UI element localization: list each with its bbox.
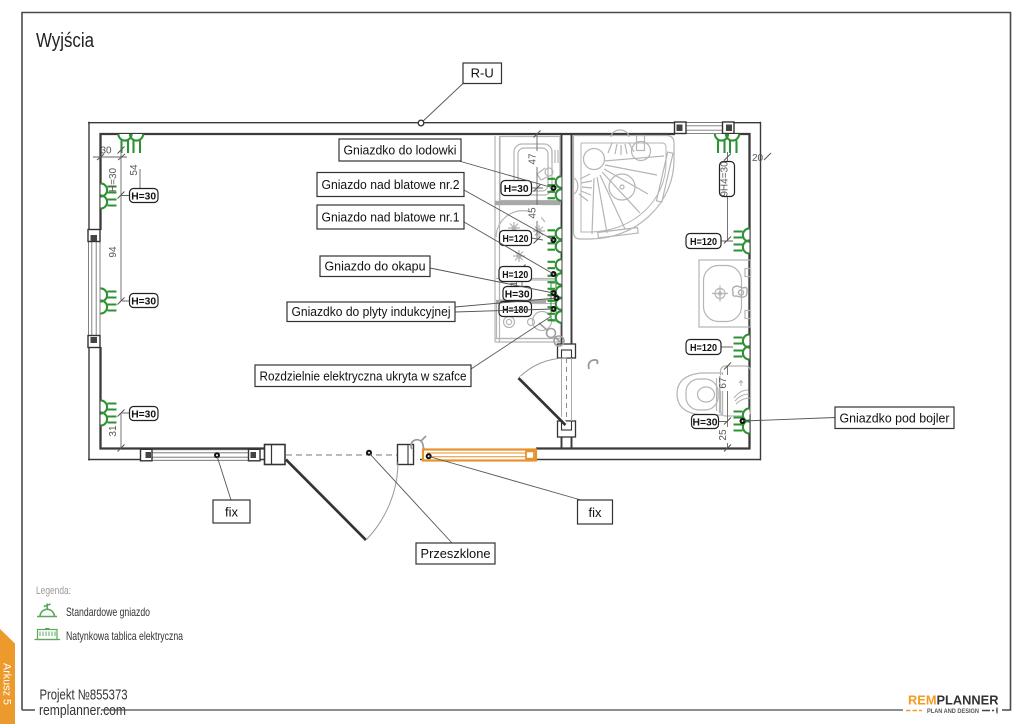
svg-text:Rozdzielnie elektryczna ukryta: Rozdzielnie elektryczna ukryta w szafce: [260, 369, 467, 384]
svg-text:Standardowe gniazdo: Standardowe gniazdo: [66, 605, 150, 619]
svg-text:67: 67: [718, 377, 729, 389]
svg-text:H=30: H=30: [131, 410, 156, 421]
svg-text:Gniazdko do plyty indukcyjnej: Gniazdko do plyty indukcyjnej: [292, 304, 451, 319]
svg-text:H=120: H=120: [503, 234, 529, 245]
svg-text:Gniazdko pod bojler: Gniazdko pod bojler: [840, 411, 951, 426]
svg-text:PLANNER: PLANNER: [937, 694, 999, 708]
svg-text:25: 25: [718, 429, 729, 441]
svg-text:9H4=30: 9H4=30: [720, 161, 731, 197]
svg-text:45: 45: [528, 207, 539, 219]
svg-text:H=30: H=30: [131, 297, 156, 308]
svg-text:Projekt №855373: Projekt №855373: [40, 688, 128, 704]
svg-text:fix: fix: [225, 505, 239, 520]
svg-text:30: 30: [100, 146, 112, 157]
svg-text:Natynkowa tablica elektryczna: Natynkowa tablica elektryczna: [66, 629, 183, 643]
svg-text:H=120: H=120: [690, 237, 717, 248]
svg-text:Przeszklone: Przeszklone: [421, 546, 491, 561]
svg-text:94: 94: [108, 246, 119, 258]
svg-text:H=30: H=30: [108, 167, 119, 192]
svg-text:PLAN AND DESIGN: PLAN AND DESIGN: [927, 709, 979, 715]
svg-text:Legenda:: Legenda:: [36, 585, 71, 597]
svg-text:remplanner.com: remplanner.com: [39, 703, 126, 719]
svg-text:20: 20: [752, 153, 764, 164]
svg-text:H=120: H=120: [690, 343, 717, 354]
svg-text:H=30: H=30: [504, 184, 529, 195]
svg-text:54: 54: [129, 164, 140, 176]
svg-text:Gniazdo do okapu: Gniazdo do okapu: [325, 259, 426, 274]
svg-text:Wyjścia: Wyjścia: [36, 30, 95, 52]
svg-text:R-U: R-U: [471, 66, 494, 81]
svg-text:Gniazdo nad blatowe nr.1: Gniazdo nad blatowe nr.1: [322, 210, 460, 225]
svg-text:H=30: H=30: [693, 418, 718, 429]
svg-text:H=30: H=30: [505, 290, 530, 301]
svg-text:H=120: H=120: [502, 270, 528, 281]
svg-text:Arkusz 5: Arkusz 5: [1, 663, 13, 705]
svg-text:31: 31: [108, 425, 119, 437]
svg-text:47: 47: [528, 153, 539, 165]
svg-text:Gniazdo nad blatowe nr.2: Gniazdo nad blatowe nr.2: [322, 177, 460, 192]
svg-text:fix: fix: [589, 505, 603, 520]
svg-text:H=30: H=30: [131, 192, 156, 203]
svg-text:Gniazdko do lodowki: Gniazdko do lodowki: [344, 143, 457, 158]
svg-text:REM: REM: [908, 694, 937, 708]
